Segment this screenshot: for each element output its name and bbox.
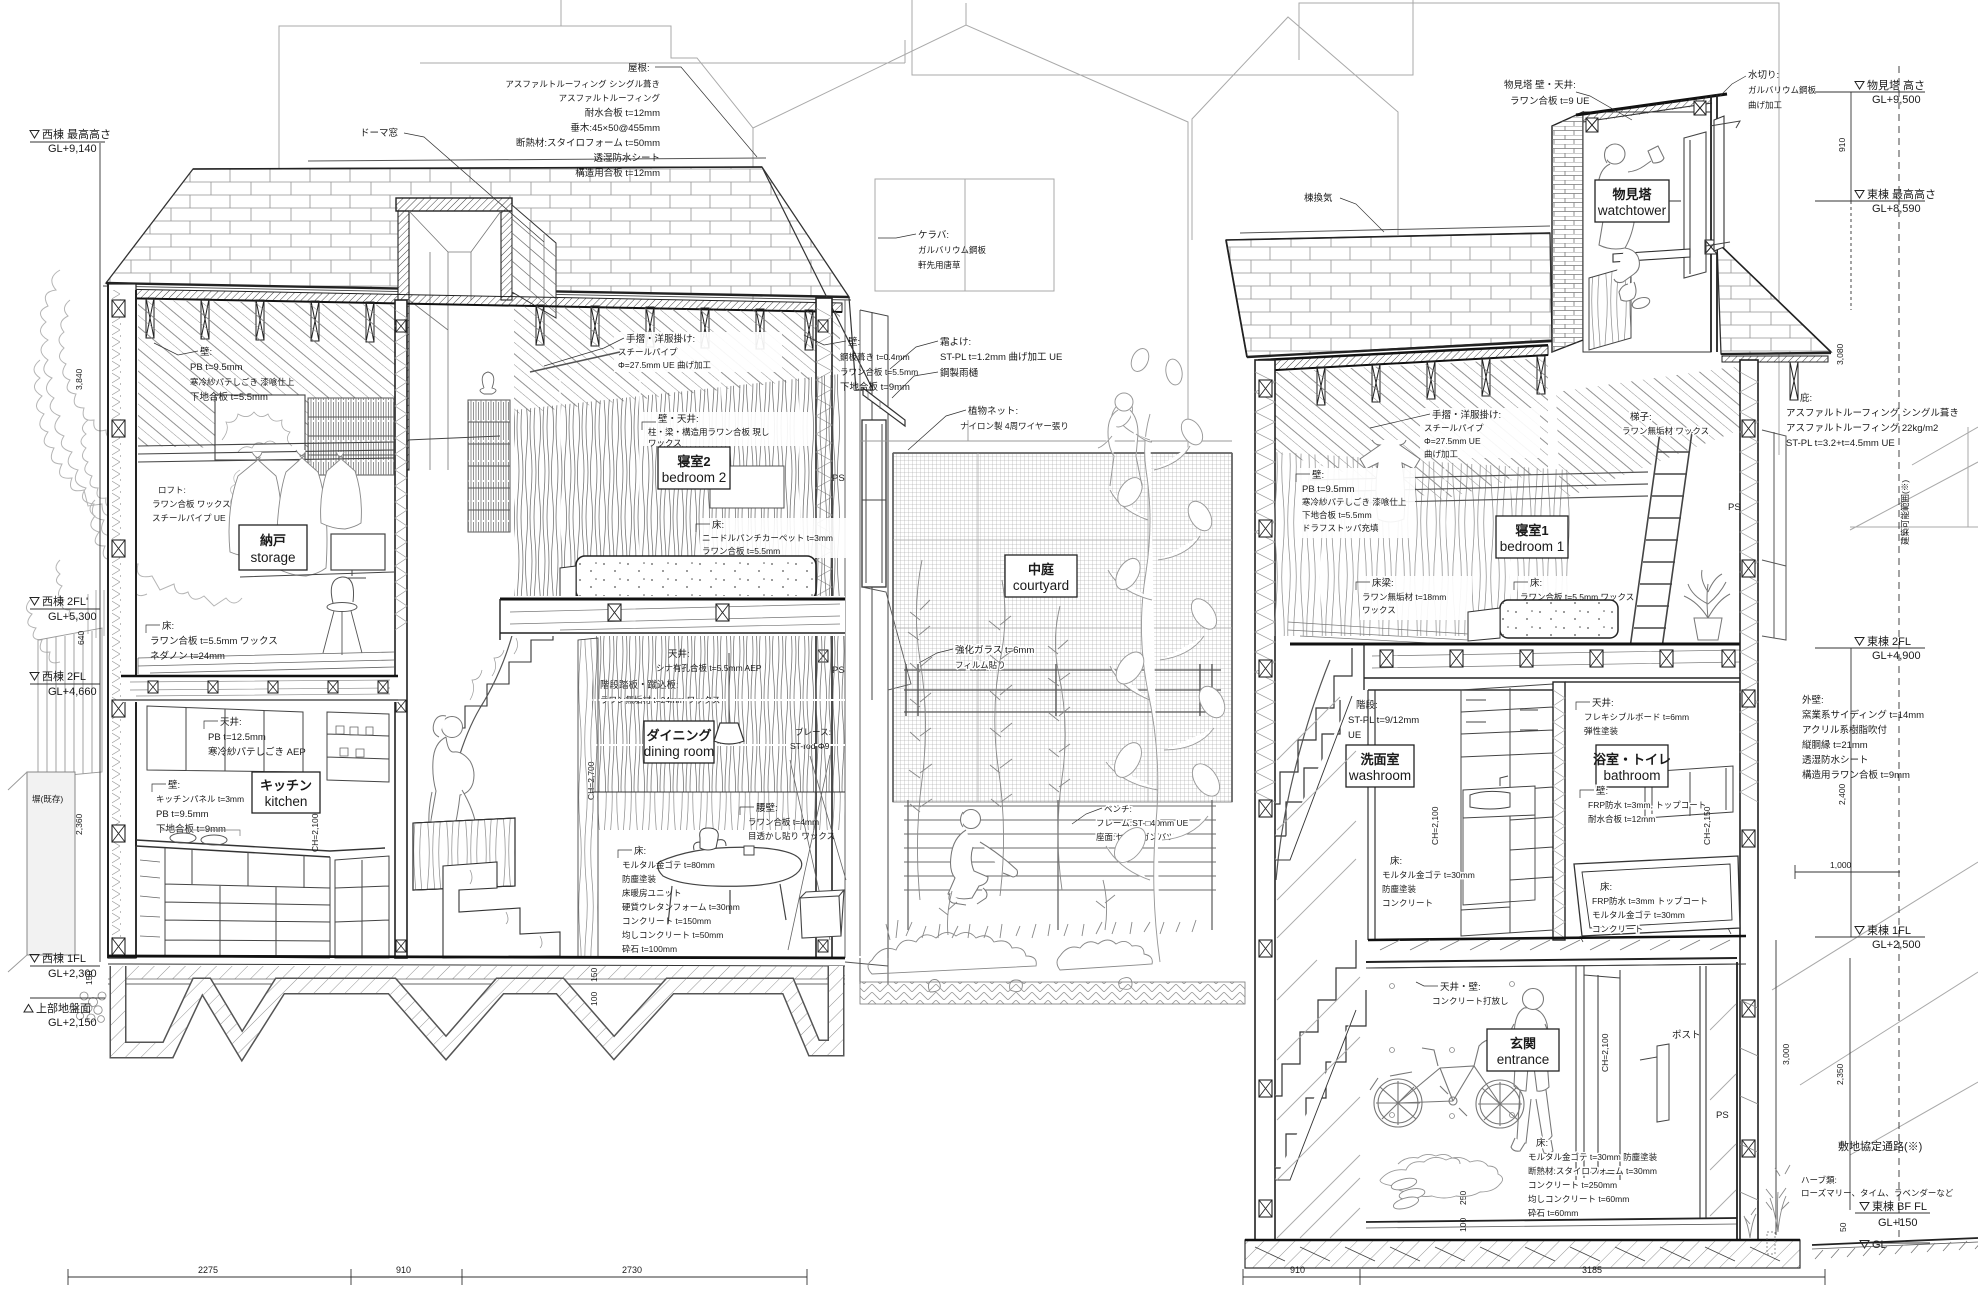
svg-text:2730: 2730 — [622, 1265, 642, 1275]
svg-text:ラワン合板 t=5.5mm ワックス: ラワン合板 t=5.5mm ワックス — [150, 635, 278, 647]
svg-text:910: 910 — [396, 1265, 411, 1275]
svg-text:寒冷紗パテしごき AEP: 寒冷紗パテしごき AEP — [208, 746, 306, 758]
svg-text:entrance: entrance — [1497, 1052, 1550, 1067]
svg-text:強化ガラス t=6mm: 強化ガラス t=6mm — [955, 644, 1034, 656]
svg-text:壁:: 壁: — [168, 779, 180, 791]
svg-text:西棟 2FL: 西棟 2FL — [42, 669, 86, 683]
svg-text:砕石 t=100mm: 砕石 t=100mm — [622, 944, 677, 954]
svg-text:構造用ラワン合板 t=9mm: 構造用ラワン合板 t=9mm — [1802, 769, 1910, 781]
svg-text:100: 100 — [1458, 1218, 1468, 1232]
svg-text:640: 640 — [76, 631, 86, 645]
svg-text:寝室2: 寝室2 — [677, 454, 710, 469]
svg-text:910: 910 — [1290, 1265, 1305, 1275]
svg-text:Φ=27.5mm UE: Φ=27.5mm UE — [1424, 436, 1481, 446]
svg-text:3,000: 3,000 — [1781, 1043, 1791, 1065]
svg-text:床:: 床: — [1530, 577, 1542, 589]
svg-text:建築可能範囲(※): 建築可能範囲(※) — [1900, 480, 1910, 545]
svg-text:構造用合板 t=12mm: 構造用合板 t=12mm — [575, 167, 660, 179]
svg-text:100: 100 — [589, 992, 599, 1006]
svg-text:ラワン合板 t=9 UE: ラワン合板 t=9 UE — [1510, 95, 1589, 107]
svg-text:西棟 最高高さ: 西棟 最高高さ — [42, 127, 111, 141]
svg-text:スチールパイプ UE: スチールパイプ UE — [152, 513, 226, 523]
svg-text:中庭: 中庭 — [1028, 562, 1055, 577]
svg-text:スチールパイプ: スチールパイプ — [1424, 423, 1484, 433]
svg-text:GL+4,900: GL+4,900 — [1872, 650, 1921, 662]
svg-text:外壁:: 外壁: — [1802, 694, 1824, 706]
svg-text:キッチン: キッチン — [260, 778, 312, 793]
svg-text:ロフト:: ロフト: — [158, 485, 186, 495]
svg-text:3185: 3185 — [1582, 1265, 1602, 1275]
svg-text:玄関: 玄関 — [1510, 1036, 1536, 1051]
svg-text:床:: 床: — [634, 845, 646, 857]
svg-text:ダイニング: ダイニング — [646, 728, 711, 743]
svg-text:断熱材:スタイロフォーム t=30mm: 断熱材:スタイロフォーム t=30mm — [1528, 1166, 1657, 1176]
svg-text:ラワン無垢材 t=18mm: ラワン無垢材 t=18mm — [1362, 592, 1446, 602]
svg-text:ST-PL t=3.2+t=4.5mm UE: ST-PL t=3.2+t=4.5mm UE — [1786, 438, 1895, 449]
svg-text:コンクリート: コンクリート — [1382, 898, 1433, 908]
svg-text:床梁:: 床梁: — [1372, 577, 1394, 589]
svg-text:鋼板葺き t=0.4mm: 鋼板葺き t=0.4mm — [840, 352, 910, 362]
svg-text:上部地盤面: 上部地盤面 — [36, 1001, 91, 1015]
svg-text:庇:: 庇: — [1800, 392, 1812, 404]
svg-text:bathroom: bathroom — [1603, 768, 1660, 783]
svg-text:軒先用唐草: 軒先用唐草 — [918, 260, 961, 270]
svg-text:ブレース:: ブレース: — [795, 727, 831, 737]
svg-text:watchtower: watchtower — [1597, 203, 1667, 218]
svg-text:PS: PS — [1716, 1110, 1729, 1121]
svg-text:壁:: 壁: — [200, 346, 212, 358]
svg-text:dining room: dining room — [644, 744, 715, 759]
svg-text:GL+5,300: GL+5,300 — [48, 611, 97, 623]
svg-text:PB t=12.5mm: PB t=12.5mm — [208, 732, 266, 743]
svg-text:透湿防水シート: 透湿防水シート — [593, 152, 660, 164]
svg-text:階段:: 階段: — [1356, 699, 1378, 711]
svg-text:床:: 床: — [1600, 881, 1612, 893]
svg-text:ポスト: ポスト — [1672, 1030, 1701, 1041]
svg-text:2,400: 2,400 — [1837, 783, 1847, 805]
svg-text:均しコンクリート t=60mm: 均しコンクリート t=60mm — [1528, 1194, 1629, 1204]
svg-text:モルタル金ゴテ t=80mm: モルタル金ゴテ t=80mm — [622, 860, 715, 870]
svg-text:アスファルトルーフィング 22kg/m2: アスファルトルーフィング 22kg/m2 — [1786, 422, 1938, 434]
svg-text:曲げ加工: 曲げ加工 — [1748, 100, 1783, 110]
svg-text:2275: 2275 — [198, 1265, 218, 1275]
svg-text:ラワン合板 t=5.5mm: ラワン合板 t=5.5mm — [702, 546, 780, 556]
svg-text:壁:: 壁: — [848, 336, 860, 348]
svg-text:GL+150: GL+150 — [1878, 1217, 1917, 1229]
svg-text:アスファルトルーフィング シングル葺き: アスファルトルーフィング シングル葺き — [505, 79, 660, 89]
svg-text:ST-PL t=9/12mm: ST-PL t=9/12mm — [1348, 715, 1419, 726]
svg-text:2,350: 2,350 — [1835, 1063, 1845, 1085]
svg-text:フレーム:ST-□40mm UE: フレーム:ST-□40mm UE — [1096, 818, 1189, 828]
svg-text:GL+8,590: GL+8,590 — [1872, 203, 1921, 215]
svg-text:窯業系サイディング t=14mm: 窯業系サイディング t=14mm — [1802, 709, 1924, 721]
svg-text:東棟 1FL: 東棟 1FL — [1867, 923, 1911, 937]
svg-text:均しコンクリート t=50mm: 均しコンクリート t=50mm — [622, 930, 723, 940]
svg-text:Φ=27.5mm UE 曲げ加工: Φ=27.5mm UE 曲げ加工 — [618, 360, 711, 370]
svg-text:3,840: 3,840 — [74, 368, 84, 390]
svg-text:弾性塗装: 弾性塗装 — [1584, 726, 1619, 736]
svg-text:床:: 床: — [712, 519, 724, 531]
svg-text:下地合板 t=9mm: 下地合板 t=9mm — [156, 823, 226, 835]
svg-text:下地合板 t=9mm: 下地合板 t=9mm — [840, 381, 910, 393]
svg-text:防塵塗装: 防塵塗装 — [1382, 884, 1417, 894]
svg-text:植物ネット:: 植物ネット: — [968, 405, 1018, 417]
svg-text:浴室・トイレ: 浴室・トイレ — [1593, 752, 1671, 767]
svg-text:目透かし貼り ワックス: 目透かし貼り ワックス — [748, 831, 835, 841]
svg-text:塀(既存): 塀(既存) — [32, 794, 63, 804]
svg-text:ガルバリウム鋼板: ガルバリウム鋼板 — [1748, 85, 1817, 95]
svg-text:床:: 床: — [162, 620, 174, 632]
svg-text:bedroom 2: bedroom 2 — [662, 470, 727, 485]
svg-text:CH=2,100: CH=2,100 — [1430, 806, 1440, 845]
svg-text:寒冷紗パテしごき 漆喰仕上: 寒冷紗パテしごき 漆喰仕上 — [1302, 497, 1407, 507]
svg-text:ラワン合板 ワックス: ラワン合板 ワックス — [152, 499, 231, 509]
svg-text:縦胴縁 t=21mm: 縦胴縁 t=21mm — [1802, 739, 1868, 751]
svg-text:モルタル金ゴテ t=30mm 防塵塗装: モルタル金ゴテ t=30mm 防塵塗装 — [1528, 1152, 1658, 1162]
svg-text:西棟 1FL: 西棟 1FL — [42, 951, 86, 965]
svg-text:モルタル金ゴテ t=30mm: モルタル金ゴテ t=30mm — [1382, 870, 1475, 880]
svg-text:3,080: 3,080 — [1835, 343, 1845, 365]
svg-text:bedroom 1: bedroom 1 — [1500, 539, 1565, 554]
svg-text:ハーブ類:: ハーブ類: — [1801, 1175, 1837, 1185]
svg-text:アスファルトルーフィング: アスファルトルーフィング — [559, 93, 661, 103]
svg-text:壁:: 壁: — [1596, 785, 1608, 797]
svg-text:kitchen: kitchen — [265, 794, 308, 809]
svg-text:物見塔 高さ: 物見塔 高さ — [1867, 78, 1925, 92]
svg-text:GL+9,500: GL+9,500 — [1872, 94, 1921, 106]
svg-text:東棟 最高高さ: 東棟 最高高さ — [1867, 187, 1936, 201]
svg-text:ワックス: ワックス — [1362, 605, 1396, 615]
svg-text:垂木:45×50@455mm: 垂木:45×50@455mm — [570, 122, 660, 134]
svg-text:50: 50 — [1838, 1222, 1848, 1232]
svg-text:鋼製雨樋: 鋼製雨樋 — [940, 367, 979, 379]
svg-text:150: 150 — [589, 968, 599, 982]
svg-text:東棟 2FL: 東棟 2FL — [1867, 634, 1911, 648]
svg-text:ラワン合板 t=4mm: ラワン合板 t=4mm — [748, 817, 819, 827]
svg-text:天井:: 天井: — [1592, 697, 1614, 709]
svg-text:ラワン無垢材 ワックス: ラワン無垢材 ワックス — [1622, 426, 1709, 436]
svg-text:ニードルパンチカーペット t=3mm: ニードルパンチカーペット t=3mm — [702, 533, 833, 543]
svg-text:床:: 床: — [1390, 855, 1402, 867]
svg-text:ネダノン t=24mm: ネダノン t=24mm — [150, 650, 225, 662]
svg-text:霜よけ:: 霜よけ: — [940, 337, 971, 348]
svg-text:床:: 床: — [1536, 1137, 1548, 1149]
svg-text:ケラバ:: ケラバ: — [918, 230, 949, 241]
svg-text:腰壁:: 腰壁: — [756, 802, 778, 814]
svg-text:CH=2,150: CH=2,150 — [1702, 806, 1712, 845]
svg-text:手摺・洋服掛け:: 手摺・洋服掛け: — [1432, 409, 1501, 421]
svg-text:アクリル系樹脂吹付: アクリル系樹脂吹付 — [1802, 724, 1888, 736]
svg-text:手摺・洋服掛け:: 手摺・洋服掛け: — [626, 333, 695, 345]
svg-text:ラワン合板 t=5.5mm: ラワン合板 t=5.5mm — [840, 367, 918, 377]
svg-text:砕石 t=60mm: 砕石 t=60mm — [1528, 1208, 1578, 1218]
svg-text:コンクリート: コンクリート — [1592, 924, 1643, 934]
svg-text:フレキシブルボード t=6mm: フレキシブルボード t=6mm — [1584, 712, 1689, 722]
svg-text:透湿防水シート: 透湿防水シート — [1802, 754, 1869, 766]
svg-text:コンクリート打放し: コンクリート打放し — [1432, 996, 1509, 1006]
svg-text:2,360: 2,360 — [74, 813, 84, 835]
svg-text:1,000: 1,000 — [1830, 860, 1852, 870]
svg-text:ベンチ:: ベンチ: — [1104, 804, 1132, 814]
svg-text:ローズマリー、タイム、ラベンダーなど: ローズマリー、タイム、ラベンダーなど — [1801, 1188, 1954, 1198]
svg-text:UE: UE — [1348, 730, 1361, 741]
svg-text:棟換気: 棟換気 — [1304, 192, 1333, 204]
svg-text:シナ有孔合板 t=5.5mm AEP: シナ有孔合板 t=5.5mm AEP — [656, 663, 762, 673]
svg-text:ST-rod Φ9: ST-rod Φ9 — [790, 741, 830, 751]
svg-text:PB t=9.5mm: PB t=9.5mm — [190, 362, 243, 373]
svg-text:キッチンパネル t=3mm: キッチンパネル t=3mm — [156, 794, 244, 804]
svg-text:GL+4,660: GL+4,660 — [48, 686, 97, 698]
svg-text:ナイロン製 4周ワイヤー張り: ナイロン製 4周ワイヤー張り — [960, 421, 1069, 431]
svg-text:250: 250 — [1458, 1191, 1468, 1205]
svg-text:washroom: washroom — [1348, 768, 1411, 783]
svg-text:柱・梁・構造用ラワン合板 現し: 柱・梁・構造用ラワン合板 現し — [648, 427, 769, 437]
svg-text:物見塔 壁・天井:: 物見塔 壁・天井: — [1504, 79, 1576, 91]
svg-text:ガルバリウム鋼板: ガルバリウム鋼板 — [918, 245, 987, 255]
svg-text:GL+2,500: GL+2,500 — [1872, 939, 1921, 951]
svg-text:防塵塗装: 防塵塗装 — [622, 874, 657, 884]
svg-text:洗面室: 洗面室 — [1360, 752, 1399, 767]
svg-text:CH=2,100: CH=2,100 — [310, 813, 320, 852]
svg-text:寝室1: 寝室1 — [1515, 523, 1548, 538]
svg-text:水切り:: 水切り: — [1748, 69, 1779, 81]
svg-text:下地合板 t=5.5mm: 下地合板 t=5.5mm — [1302, 510, 1372, 520]
svg-text:壁:: 壁: — [1312, 469, 1324, 481]
svg-text:アスファルトルーフィング シングル葺き: アスファルトルーフィング シングル葺き — [1786, 407, 1959, 419]
svg-text:東棟 BF FL: 東棟 BF FL — [1872, 1199, 1927, 1213]
svg-text:天井:: 天井: — [668, 648, 690, 660]
svg-text:曲げ加工: 曲げ加工 — [1424, 449, 1459, 459]
svg-text:courtyard: courtyard — [1013, 578, 1069, 593]
svg-text:耐水合板 t=12mm: 耐水合板 t=12mm — [585, 107, 660, 119]
svg-text:910: 910 — [1837, 138, 1847, 152]
svg-text:PB t=9.5mm: PB t=9.5mm — [1302, 484, 1355, 495]
svg-text:天井:: 天井: — [220, 716, 242, 728]
svg-text:敷地協定通路(※): 敷地協定通路(※) — [1838, 1139, 1922, 1153]
svg-text:梯子:: 梯子: — [1630, 411, 1652, 423]
svg-text:寒冷紗パテしごき 漆喰仕上: 寒冷紗パテしごき 漆喰仕上 — [190, 377, 295, 387]
svg-text:壁・天井:: 壁・天井: — [658, 413, 699, 425]
svg-text:GL+2,150: GL+2,150 — [48, 1017, 97, 1029]
svg-text:CH=2,100: CH=2,100 — [1600, 1033, 1610, 1072]
svg-text:ドーマ窓: ドーマ窓 — [360, 127, 398, 139]
svg-text:GL+9,140: GL+9,140 — [48, 143, 97, 155]
svg-text:FRP防水 t=3mm, トップコート: FRP防水 t=3mm, トップコート — [1588, 800, 1706, 810]
svg-text:ドラフストッパ充填: ドラフストッパ充填 — [1302, 523, 1379, 533]
svg-text:コンクリート t=150mm: コンクリート t=150mm — [622, 916, 711, 926]
svg-text:storage: storage — [250, 550, 295, 565]
svg-text:耐水合板 t=12mm: 耐水合板 t=12mm — [1588, 814, 1655, 824]
svg-text:納戸: 納戸 — [260, 533, 286, 548]
svg-text:コンクリート t=250mm: コンクリート t=250mm — [1528, 1180, 1617, 1190]
svg-text:PS: PS — [1728, 502, 1741, 513]
svg-text:西棟 2FL': 西棟 2FL' — [42, 594, 88, 608]
svg-text:物見塔: 物見塔 — [1612, 187, 1652, 202]
svg-text:床暖房ユニット: 床暖房ユニット — [622, 888, 682, 898]
svg-text:150: 150 — [84, 971, 94, 985]
svg-text:ST-PL t=1.2mm 曲げ加工 UE: ST-PL t=1.2mm 曲げ加工 UE — [940, 352, 1062, 363]
svg-text:モルタル金ゴテ t=30mm: モルタル金ゴテ t=30mm — [1592, 910, 1685, 920]
svg-text:屋根:: 屋根: — [628, 62, 650, 74]
svg-text:硬質ウレタンフォーム t=30mm: 硬質ウレタンフォーム t=30mm — [622, 902, 740, 912]
svg-text:下地合板 t=5.5mm: 下地合板 t=5.5mm — [190, 391, 268, 403]
svg-text:PB t=9.5mm: PB t=9.5mm — [156, 809, 209, 820]
svg-text:天井・壁:: 天井・壁: — [1440, 981, 1481, 993]
svg-text:スチールパイプ: スチールパイプ — [618, 347, 678, 357]
svg-text:FRP防水 t=3mm トップコート: FRP防水 t=3mm トップコート — [1592, 896, 1708, 906]
svg-text:断熱材:スタイロフォーム t=50mm: 断熱材:スタイロフォーム t=50mm — [516, 137, 660, 149]
